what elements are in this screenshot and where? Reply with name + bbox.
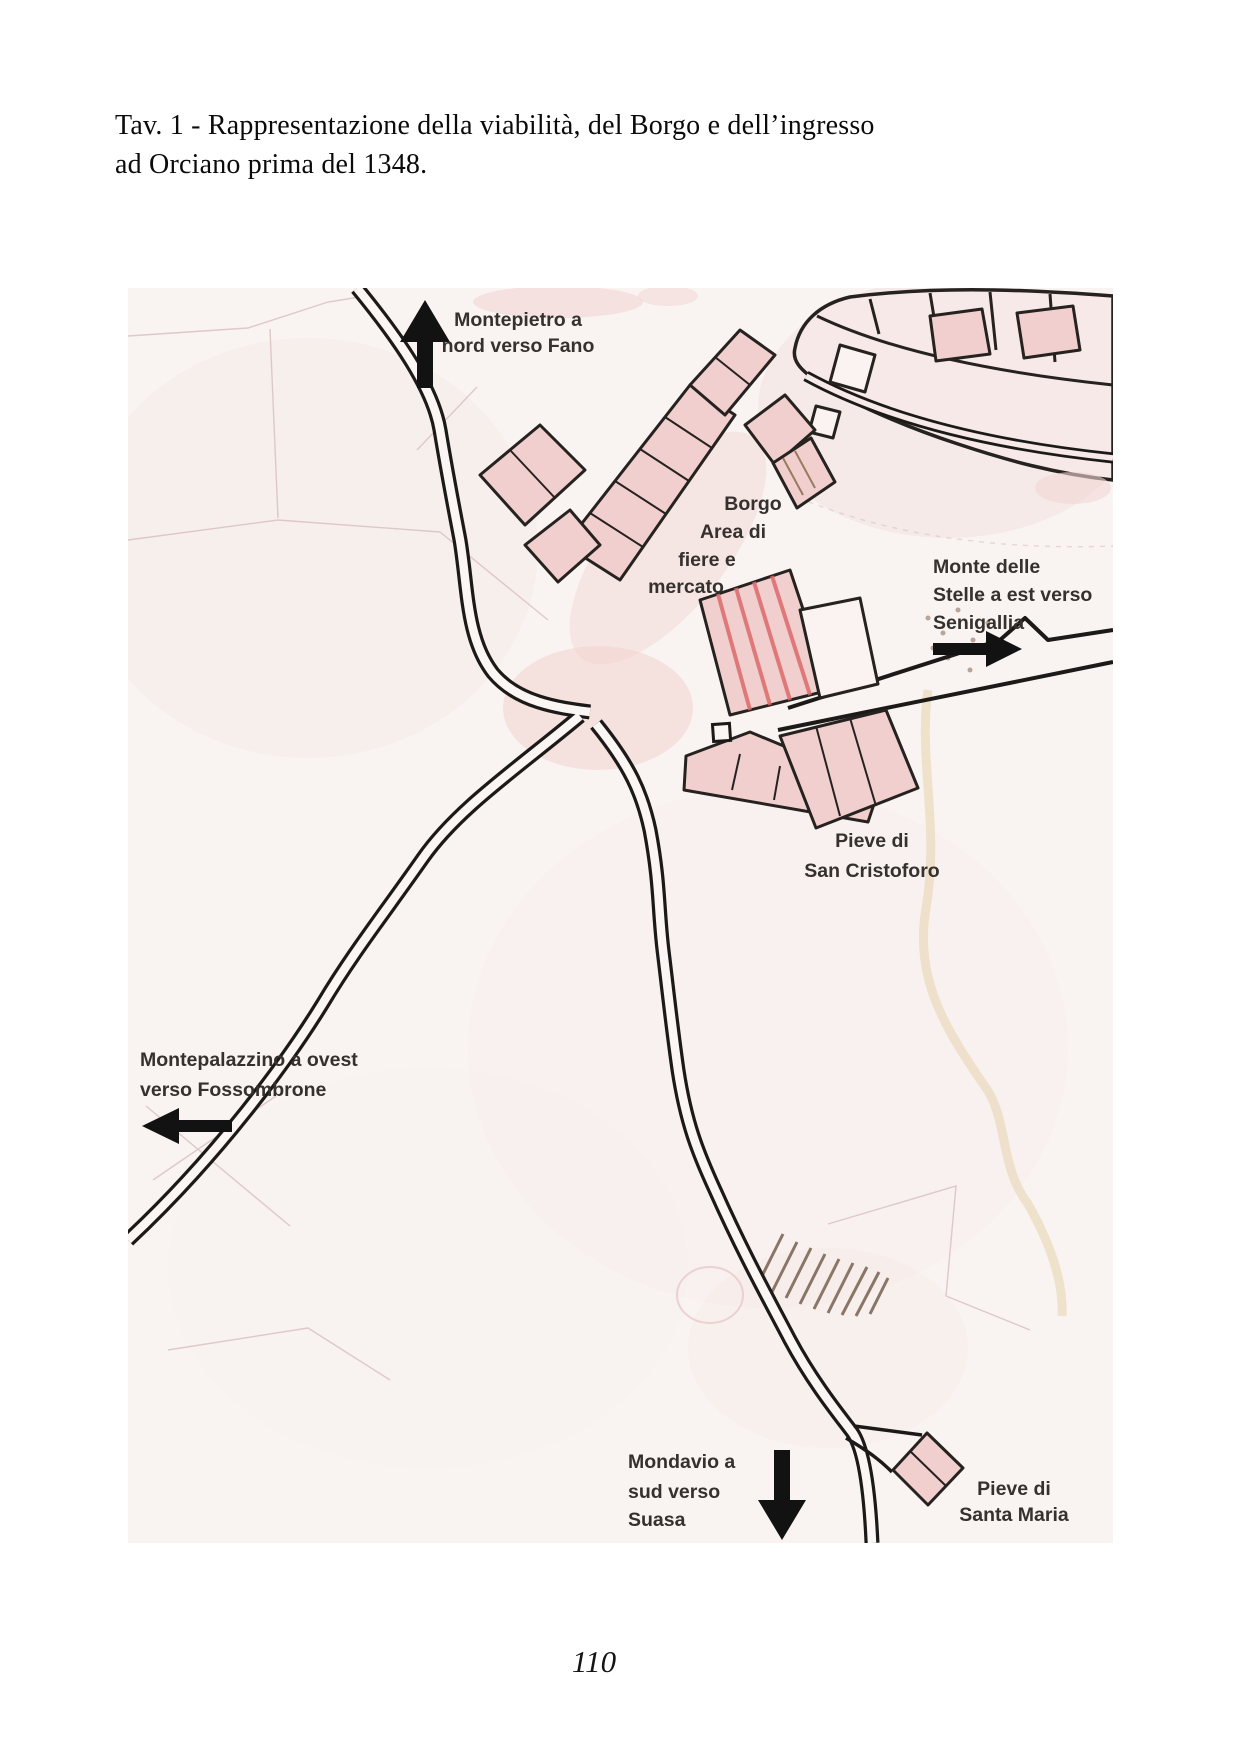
label-line: San Cristoforo [804,860,940,882]
caption-line-2: ad Orciano prima del 1348. [115,145,1095,184]
castle-tower [830,345,875,392]
label-line: Montepietro a [454,309,582,331]
label-line: fiere e [678,549,736,571]
orciano-map: Montepietro a nord verso Fano Borgo Area… [128,288,1113,1543]
label-line: nord verso Fano [442,335,595,357]
label-line: Montepalazzino a ovest [140,1049,358,1071]
label-line: Borgo [724,493,781,515]
market-square-marker [712,723,730,741]
label-line: Area di [700,521,766,543]
castle-gate-tower [809,406,840,438]
map-figure: Montepietro a nord verso Fano Borgo Area… [128,288,1113,1543]
label-line: Santa Maria [959,1504,1069,1526]
label-line: Senigallia [933,612,1024,634]
label-line: Monte delle [933,556,1040,578]
figure-caption: Tav. 1 - Rappresentazione della viabilit… [115,106,1095,184]
label-line: Pieve di [835,830,909,852]
document-page: Tav. 1 - Rappresentazione della viabilit… [0,0,1240,1754]
label-line: Suasa [628,1509,686,1531]
label-line: verso Fossombrone [140,1079,327,1101]
label-line: sud verso [628,1481,720,1503]
label-line: Pieve di [977,1478,1051,1500]
page-number: 110 [0,1644,1188,1680]
label-line: Mondavio a [628,1451,735,1473]
label-line: mercato [648,576,724,598]
label-line: Stelle a est verso [933,584,1092,606]
caption-line-1: Tav. 1 - Rappresentazione della viabilit… [115,106,1095,145]
